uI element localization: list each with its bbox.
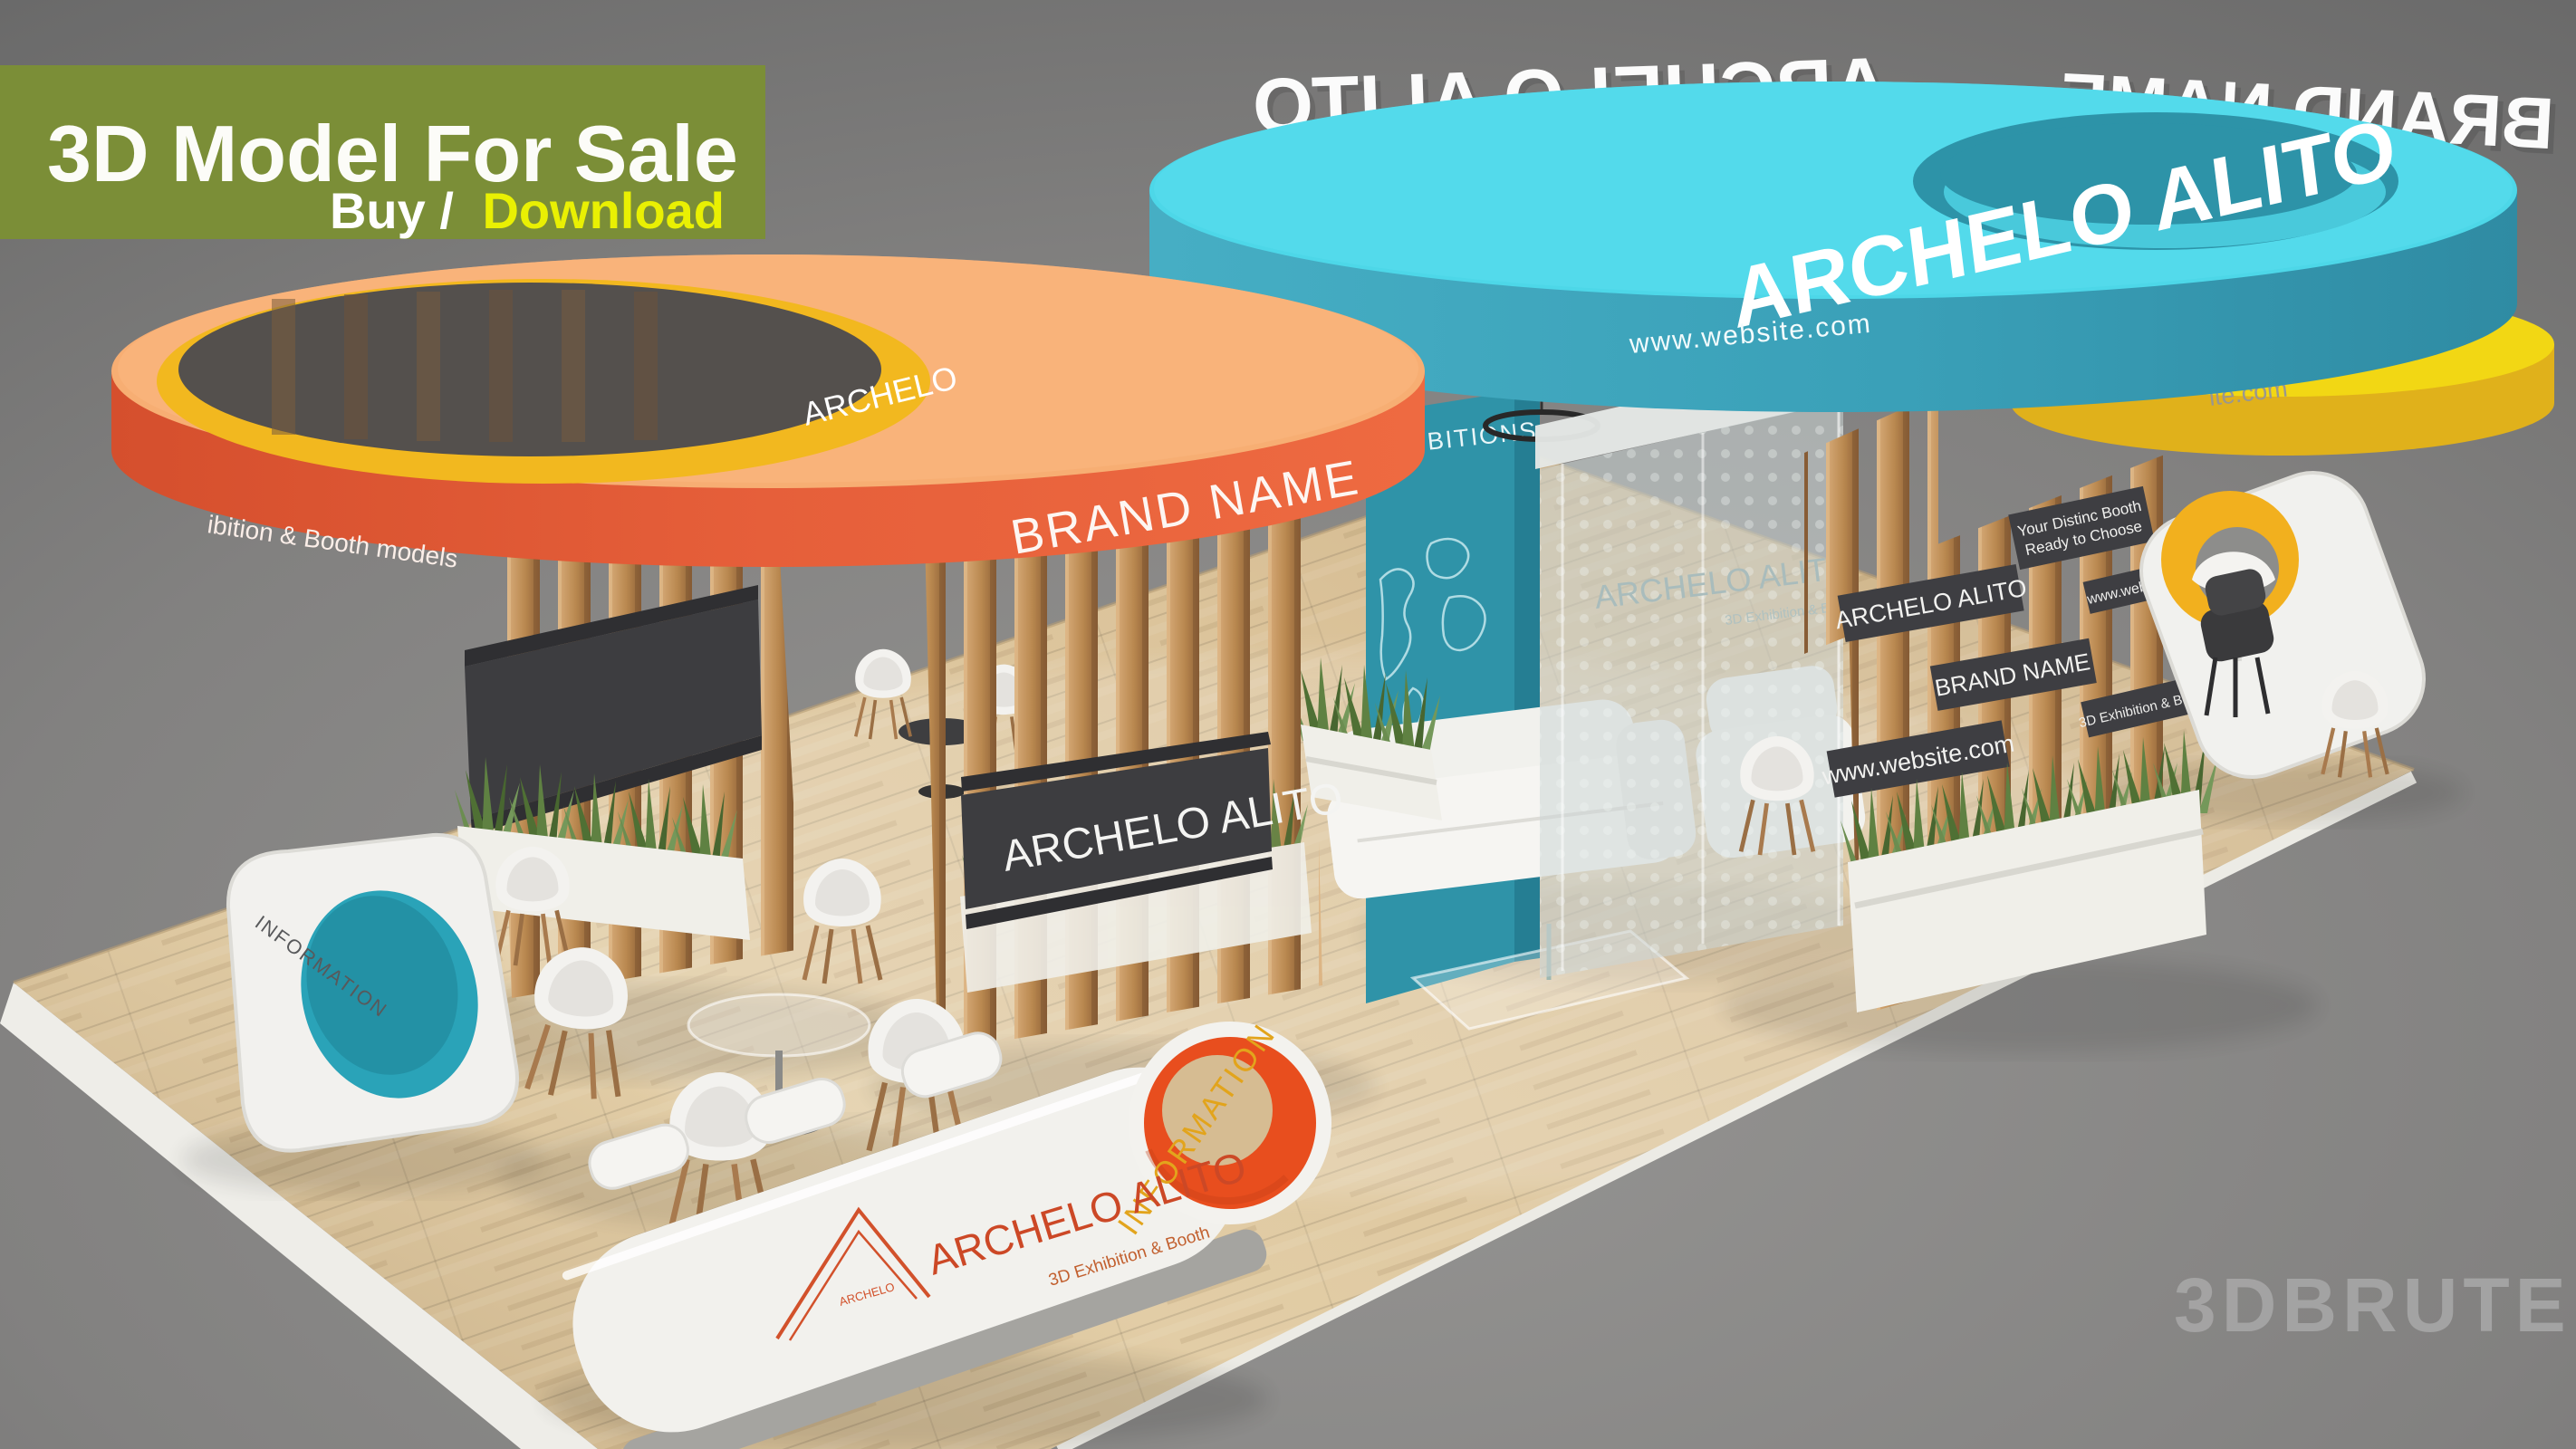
left-info-counter: INFORMATION [228, 835, 517, 1151]
orange-disc: ARCHELO BRAND NAME ibition & Booth model… [111, 254, 1425, 573]
download-label[interactable]: Download [482, 182, 725, 239]
booth-render-scene: ARCHELO ALITO ARCHELO ALITO BRAND NAME B… [0, 0, 2576, 1449]
buy-label[interactable]: Buy / [330, 182, 454, 239]
glass-wall: ARCHELO ALITO 3D Exhibition & Booth [1535, 355, 1857, 978]
banner-subtitle: Buy / Download [330, 182, 725, 239]
watermark-text: 3DBRUTE [2174, 1262, 2571, 1348]
promo-banner[interactable]: 3D Model For Sale Buy / Download [0, 65, 765, 239]
render-canvas: ARCHELO ALITO ARCHELO ALITO BRAND NAME B… [0, 0, 2576, 1449]
